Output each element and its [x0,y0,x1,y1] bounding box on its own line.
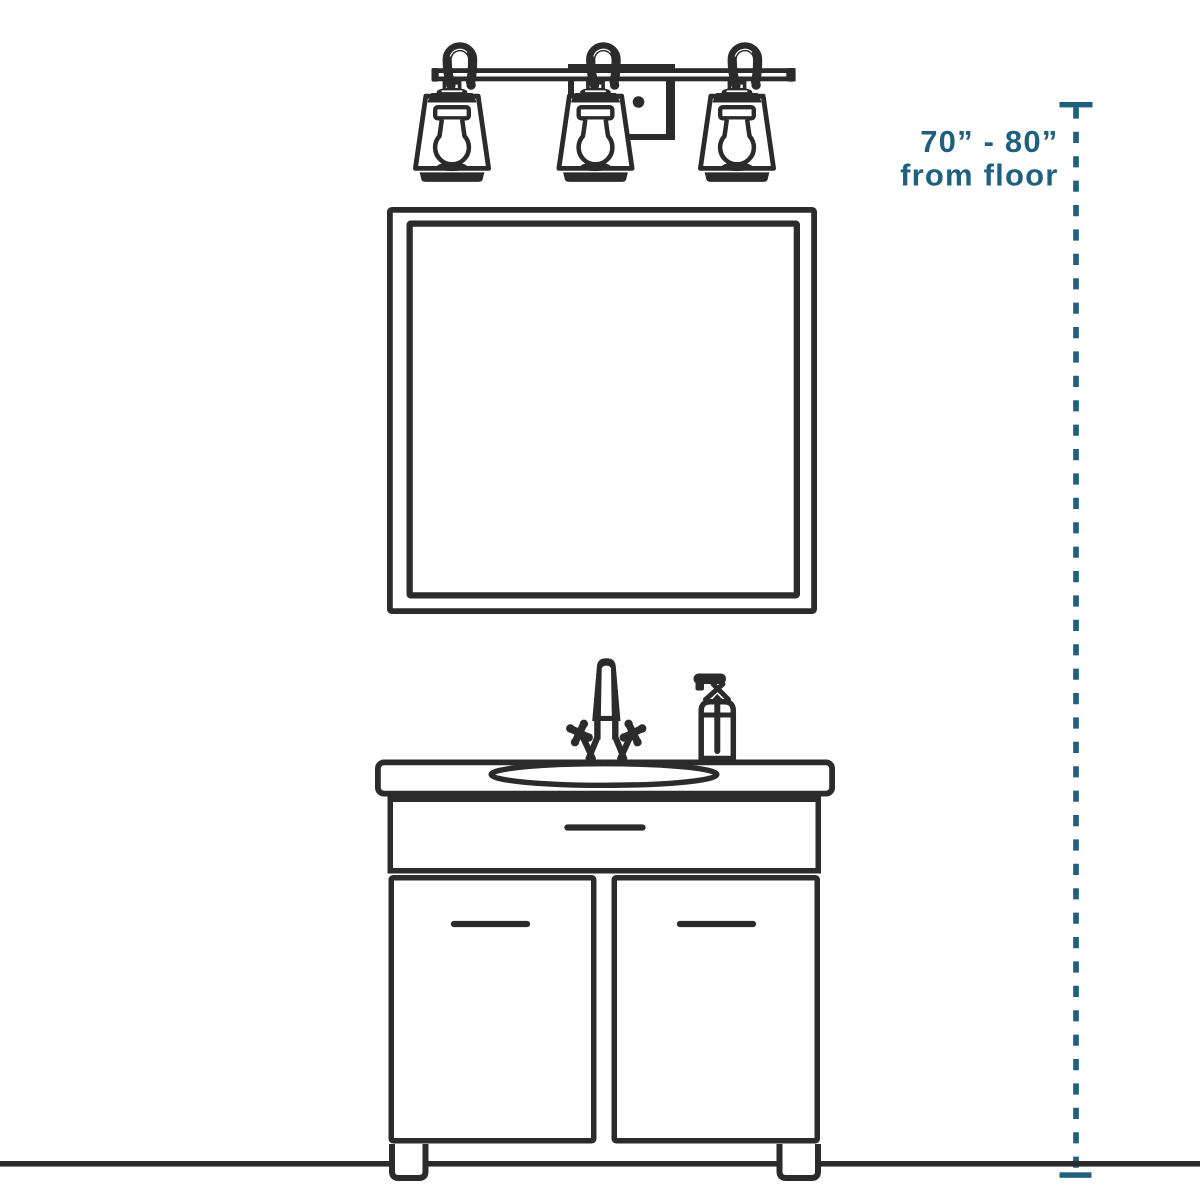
svg-text:70” - 80”: 70” - 80” [920,124,1058,159]
svg-text:from floor: from floor [900,157,1058,192]
